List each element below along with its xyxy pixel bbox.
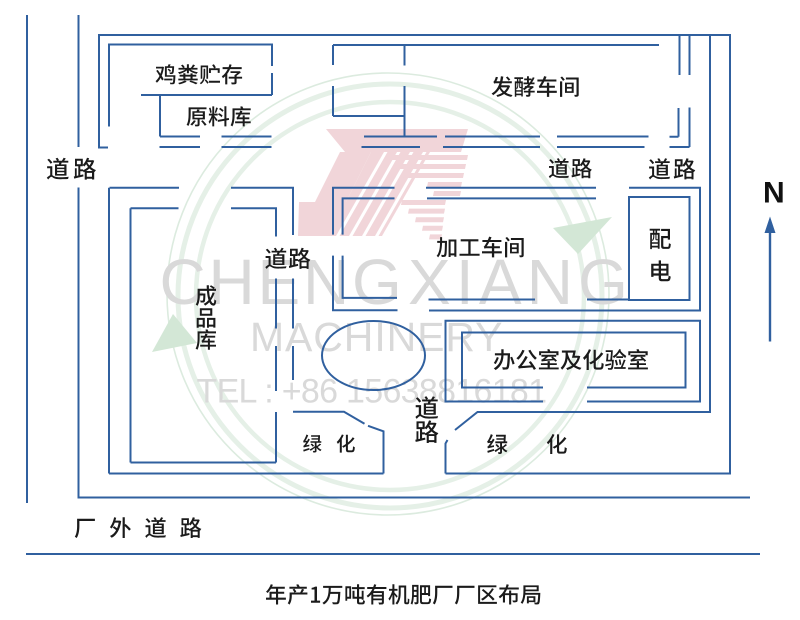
svg-text:TEL : +86 15638816181: TEL : +86 15638816181 xyxy=(197,373,547,411)
svg-text:CHENG: CHENG xyxy=(160,246,405,318)
svg-text:N: N xyxy=(763,177,785,210)
